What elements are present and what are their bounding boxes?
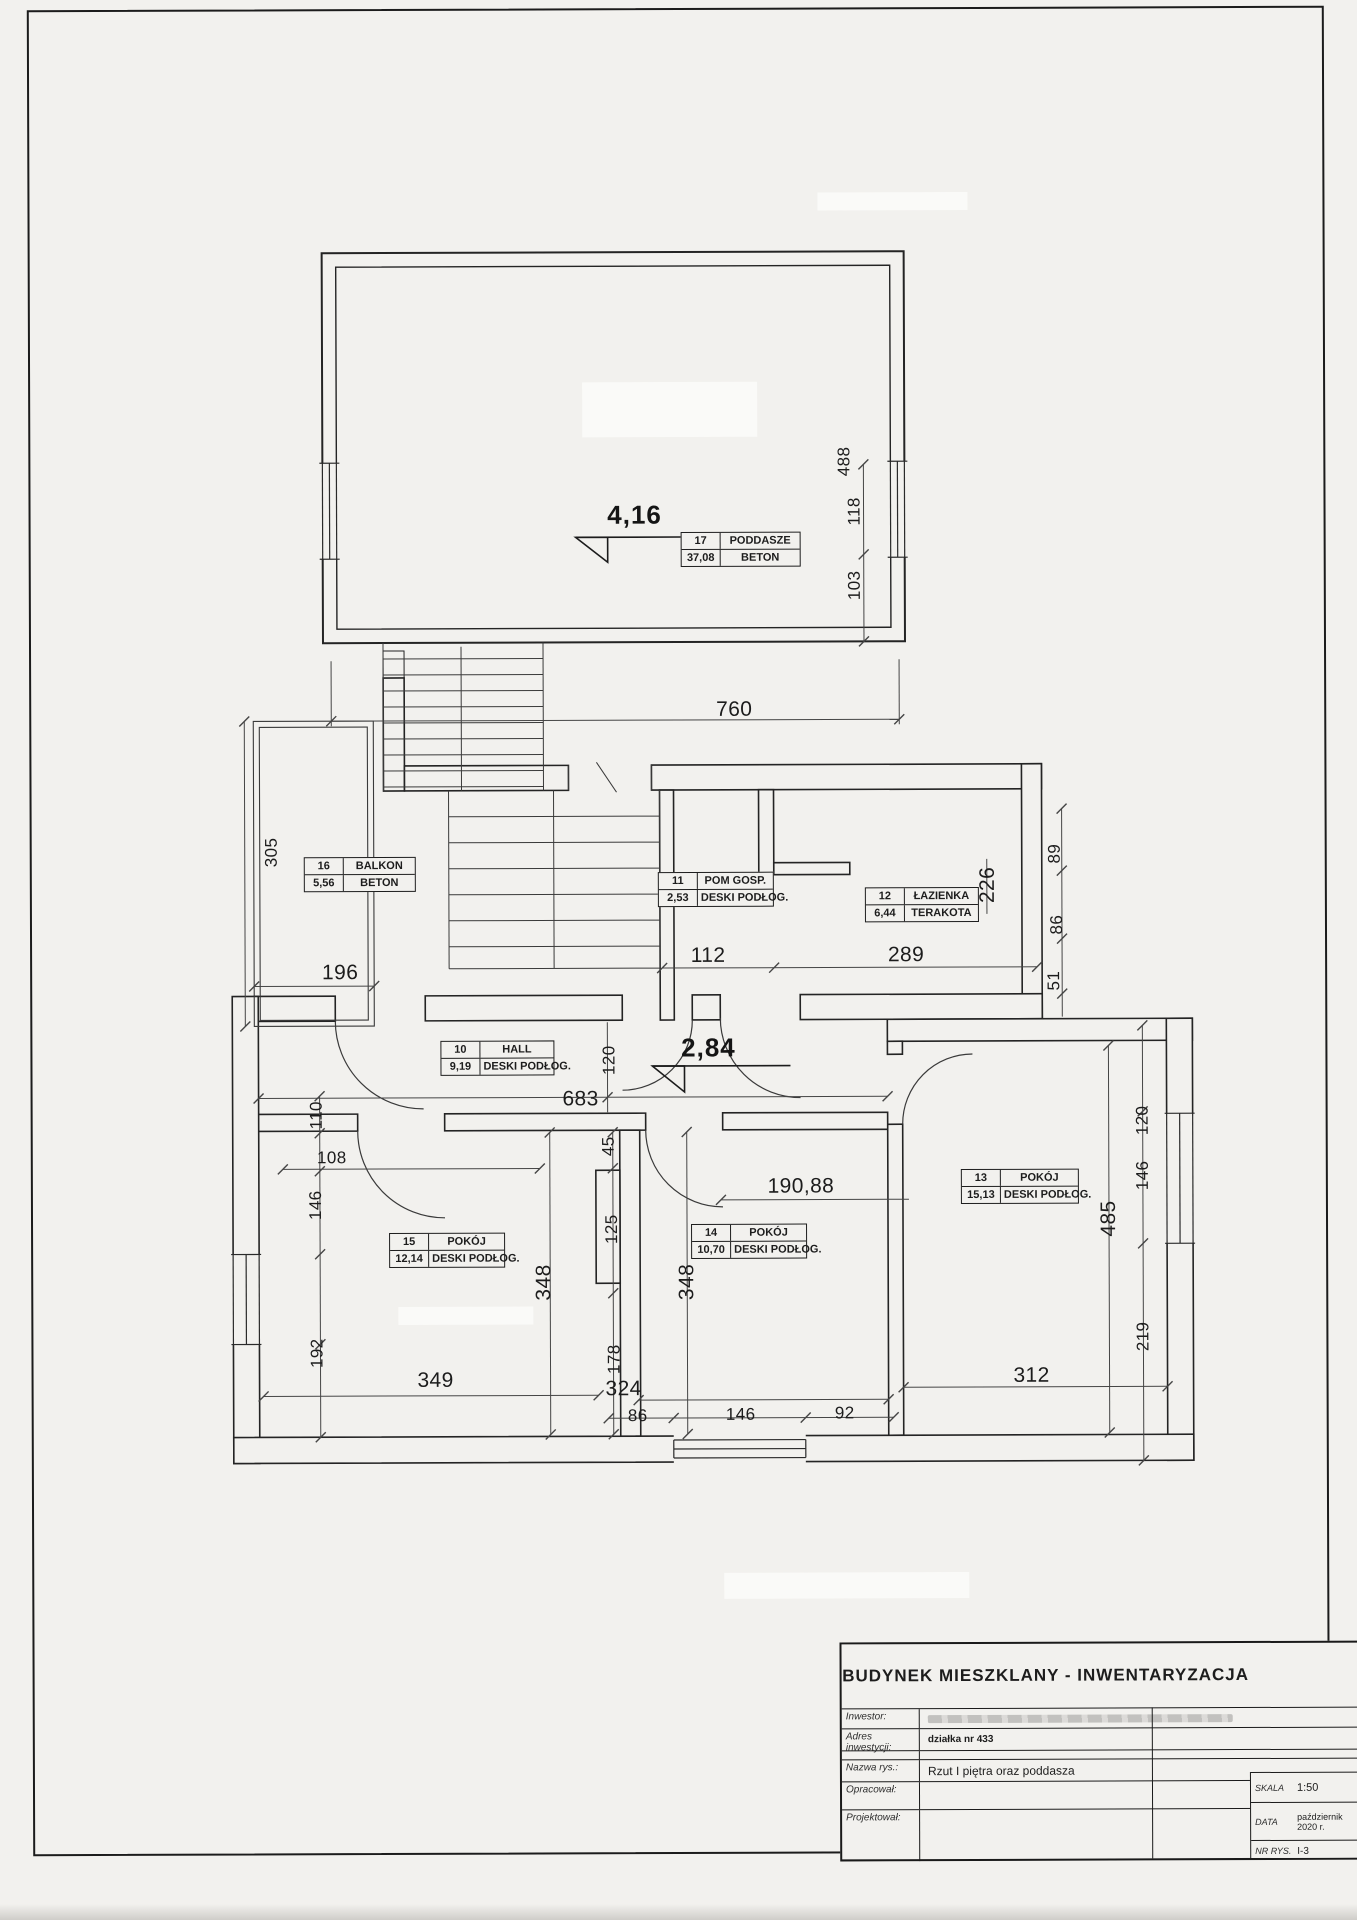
room-table-17: 17PODDASZE37,08BETON — [681, 532, 801, 567]
dim-label: 178 — [604, 1344, 624, 1374]
floor-windows — [231, 1113, 1196, 1465]
dim-label: 110 — [307, 1101, 327, 1129]
room-cell-text: DESKI PODŁOG. — [1001, 1187, 1078, 1203]
room-cell-text: POKÓJ — [731, 1225, 806, 1241]
room-table-13: 13POKÓJ15,13DESKI PODŁOG. — [961, 1169, 1079, 1204]
dim-label: 45 — [599, 1136, 619, 1156]
title-block-meta: SKALA 1:50 DATA październik 2020 r. NR R… — [1250, 1772, 1357, 1858]
room-cell-text: DESKI PODŁOG. — [731, 1242, 806, 1258]
dim-label: 348 — [532, 1264, 556, 1300]
scale-label: SKALA — [1255, 1782, 1297, 1792]
dim-label: 120 — [1133, 1106, 1153, 1136]
spacer-value — [920, 1750, 1357, 1760]
dim-label: 112 — [691, 944, 726, 968]
dim-label: 312 — [1013, 1364, 1049, 1388]
room-cell-number: 9,19 — [441, 1059, 480, 1075]
drawing-no-row: NR RYS. I-3 — [1251, 1840, 1357, 1861]
dim-label: 305 — [262, 838, 282, 868]
room-cell-text: TERAKOTA — [905, 905, 978, 921]
room-table-row: 11POM GOSP. — [659, 873, 773, 889]
dim-label: 349 — [417, 1369, 453, 1393]
room-table-row: 13POKÓJ — [962, 1170, 1078, 1186]
room-cell-text: BETON — [721, 550, 800, 566]
dim-label: 760 — [716, 698, 752, 722]
room-table-10: 10HALL9,19DESKI PODŁOG. — [440, 1040, 554, 1075]
room-cell-number: 15,13 — [962, 1187, 1001, 1203]
dim-label: 219 — [1133, 1322, 1153, 1352]
scale-row: SKALA 1:50 — [1251, 1772, 1357, 1802]
room-cell-number: 10 — [441, 1042, 480, 1058]
room-cell-number: 12,14 — [390, 1251, 429, 1267]
level-value: 2,84 — [681, 1032, 736, 1063]
title-block: BUDYNEK MIESZKLANY - INWENTARYZACJA Inwe… — [839, 1641, 1357, 1862]
dim-label: 86 — [628, 1406, 648, 1426]
title-block-row-adres: Adres inwestycji: działka nr 433 — [842, 1728, 1357, 1752]
room-table-15: 15POKÓJ12,14DESKI PODŁOG. — [389, 1233, 505, 1268]
room-table-row: 15,13DESKI PODŁOG. — [962, 1186, 1078, 1203]
dim-label: 146 — [306, 1190, 326, 1220]
dim-label: 683 — [562, 1087, 598, 1111]
dim-label: 289 — [888, 943, 924, 967]
title-block-row-inwestor: Inwestor: — [842, 1708, 1357, 1730]
room-table-row: 10,70DESKI PODŁOG. — [692, 1241, 806, 1258]
room-table-row: 6,44TERAKOTA — [866, 904, 978, 921]
room-table-14: 14POKÓJ10,70DESKI PODŁOG. — [691, 1224, 807, 1259]
room-cell-number: 11 — [659, 873, 698, 889]
room-table-row: 10HALL — [441, 1041, 553, 1057]
room-table-row: 12ŁAZIENKA — [866, 888, 978, 904]
scan-artifact — [817, 192, 967, 211]
dim-label: 190,88 — [768, 1174, 835, 1198]
dim-label: 51 — [1044, 971, 1064, 991]
room-cell-number: 6,44 — [866, 905, 905, 921]
room-cell-number: 37,08 — [682, 550, 721, 566]
room-table-row: 17PODDASZE — [682, 533, 800, 549]
spacer-label — [842, 1751, 920, 1759]
room-cell-text: PODDASZE — [721, 533, 800, 549]
nazwa-label: Nazwa rys.: — [842, 1760, 920, 1781]
title-block-title: BUDYNEK MIESZKLANY - INWENTARYZACJA — [841, 1643, 1357, 1710]
dim-label: 192 — [307, 1338, 327, 1368]
dim-label: 125 — [602, 1214, 622, 1244]
date-row: DATA październik 2020 r. — [1251, 1802, 1357, 1840]
drawing-no-label: NR RYS. — [1255, 1846, 1297, 1856]
adres-label: Adres inwestycji: — [842, 1729, 920, 1750]
room-table-row: 37,08BETON — [682, 549, 800, 566]
inwestor-value — [920, 1708, 1357, 1729]
room-cell-number: 5,56 — [305, 875, 344, 891]
room-cell-number: 2,53 — [659, 890, 698, 906]
room-table-12: 12ŁAZIENKA6,44TERAKOTA — [865, 887, 979, 922]
room-table-row: 12,14DESKI PODŁOG. — [390, 1250, 504, 1267]
room-cell-text: HALL — [480, 1041, 553, 1057]
dim-label: 86 — [1047, 915, 1067, 935]
room-cell-number: 17 — [682, 533, 721, 549]
opracowal-label: Opracował: — [842, 1782, 920, 1809]
date-value: październik 2020 r. — [1297, 1811, 1357, 1831]
dim-label: 92 — [835, 1403, 855, 1423]
level-value: 4,16 — [607, 500, 662, 531]
room-table-row: 5,56BETON — [305, 874, 415, 891]
room-cell-number: 12 — [866, 888, 905, 904]
room-table-16: 16BALKON5,56BETON — [304, 857, 416, 892]
room-cell-text: POM GOSP. — [698, 873, 773, 889]
dim-label: 103 — [845, 571, 865, 601]
dim-label: 485 — [1097, 1200, 1121, 1236]
scanned-floor-plan-page: 17PODDASZE37,08BETON16BALKON5,56BETON11P… — [0, 0, 1357, 1920]
dim-label: 118 — [844, 497, 864, 525]
attic-walls — [322, 251, 905, 643]
room-cell-number: 15 — [390, 1234, 429, 1250]
projektowal-label: Projektował: — [842, 1810, 920, 1861]
paper-edge-shadow — [0, 1904, 1357, 1920]
room-cell-number: 16 — [305, 858, 344, 874]
room-cell-text: DESKI PODŁOG. — [429, 1251, 504, 1267]
room-cell-text: POKÓJ — [429, 1234, 504, 1250]
room-table-row: 2,53DESKI PODŁOG. — [659, 889, 773, 906]
dim-label: 348 — [675, 1264, 699, 1300]
dim-label: 146 — [1133, 1161, 1153, 1191]
inwestor-label: Inwestor: — [842, 1709, 920, 1728]
dim-label: 324 — [605, 1377, 641, 1401]
dim-label: 146 — [726, 1405, 756, 1425]
room-table-row: 15POKÓJ — [390, 1234, 504, 1250]
staircase — [383, 642, 660, 969]
dim-label: 196 — [322, 961, 358, 985]
dim-label: 108 — [317, 1148, 347, 1168]
room-cell-number: 13 — [962, 1170, 1001, 1186]
dim-label: 488 — [834, 447, 854, 477]
drawing-no-value: I-3 — [1297, 1845, 1357, 1856]
room-table-row: 14POKÓJ — [692, 1225, 806, 1241]
redacted-text — [928, 1714, 1233, 1723]
room-cell-text: ŁAZIENKA — [905, 888, 978, 904]
dim-label: 89 — [1045, 844, 1065, 864]
scan-artifact — [582, 382, 757, 438]
room-cell-text: BALKON — [344, 858, 415, 874]
adres-value: działka nr 433 — [920, 1728, 1357, 1751]
room-cell-number: 14 — [692, 1225, 731, 1241]
drawing-frame: 17PODDASZE37,08BETON16BALKON5,56BETON11P… — [27, 6, 1330, 1857]
room-table-row: 9,19DESKI PODŁOG. — [441, 1057, 553, 1074]
room-cell-number: 10,70 — [692, 1242, 731, 1258]
dim-label: 120 — [599, 1045, 619, 1075]
room-table-11: 11POM GOSP.2,53DESKI PODŁOG. — [658, 872, 774, 907]
room-table-row: 16BALKON — [305, 858, 415, 874]
scan-artifact — [398, 1307, 533, 1325]
scan-artifact — [724, 1572, 969, 1599]
scale-value: 1:50 — [1297, 1781, 1357, 1793]
room-cell-text: BETON — [344, 875, 415, 891]
dim-label: 226 — [976, 867, 1000, 903]
date-label: DATA — [1255, 1816, 1297, 1826]
room-cell-text: DESKI PODŁOG. — [698, 890, 773, 906]
room-cell-text: DESKI PODŁOG. — [480, 1058, 553, 1074]
room-cell-text: POKÓJ — [1001, 1170, 1078, 1186]
